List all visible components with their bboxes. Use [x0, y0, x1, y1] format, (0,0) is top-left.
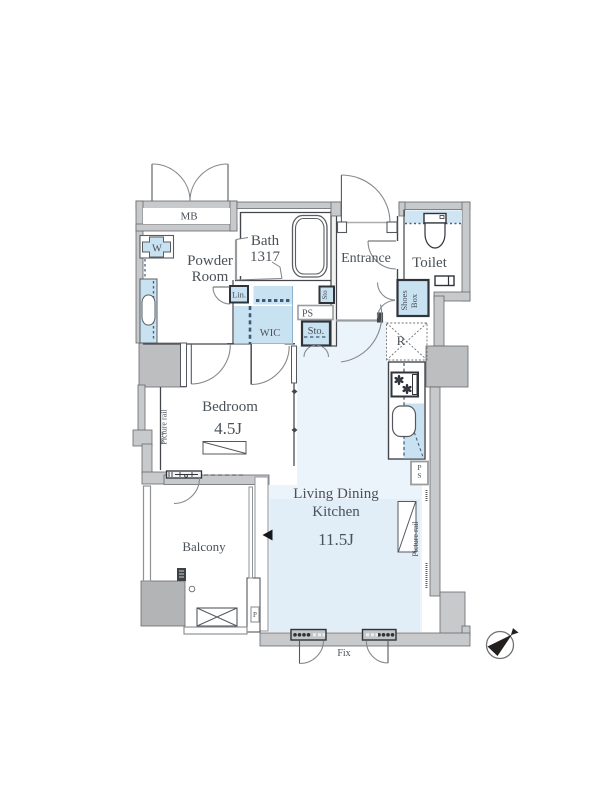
svg-text:R: R [397, 333, 406, 348]
svg-text:WIC: WIC [260, 328, 280, 339]
svg-text:11.5J: 11.5J [318, 530, 354, 549]
svg-text:Toilet: Toilet [412, 255, 448, 271]
svg-text:Living Dining: Living Dining [293, 486, 379, 502]
svg-text:Lin.: Lin. [232, 290, 246, 300]
svg-text:W: W [152, 244, 162, 255]
svg-text:Sto: Sto [321, 290, 329, 300]
svg-text:Bath: Bath [251, 233, 280, 249]
svg-text:Shoes: Shoes [399, 290, 409, 310]
svg-text:PS: PS [302, 309, 313, 320]
svg-text:Bedroom: Bedroom [202, 399, 258, 415]
svg-text:4.5J: 4.5J [214, 419, 242, 438]
svg-text:Picture rail: Picture rail [411, 521, 420, 557]
svg-text:Picture rail: Picture rail [160, 409, 169, 445]
svg-text:MB: MB [180, 211, 197, 223]
svg-text:Sto.: Sto. [308, 326, 325, 337]
svg-text:Entrance: Entrance [341, 251, 391, 266]
svg-text:S: S [417, 471, 421, 480]
svg-text:Powder: Powder [187, 253, 233, 269]
svg-text:Room: Room [192, 269, 229, 285]
svg-text:Box: Box [409, 293, 419, 308]
svg-text:Fix: Fix [337, 648, 350, 659]
svg-text:Balcony: Balcony [182, 539, 226, 554]
svg-text:P: P [253, 611, 257, 619]
svg-text:Kitchen: Kitchen [312, 504, 360, 520]
svg-text:1317: 1317 [250, 249, 281, 265]
